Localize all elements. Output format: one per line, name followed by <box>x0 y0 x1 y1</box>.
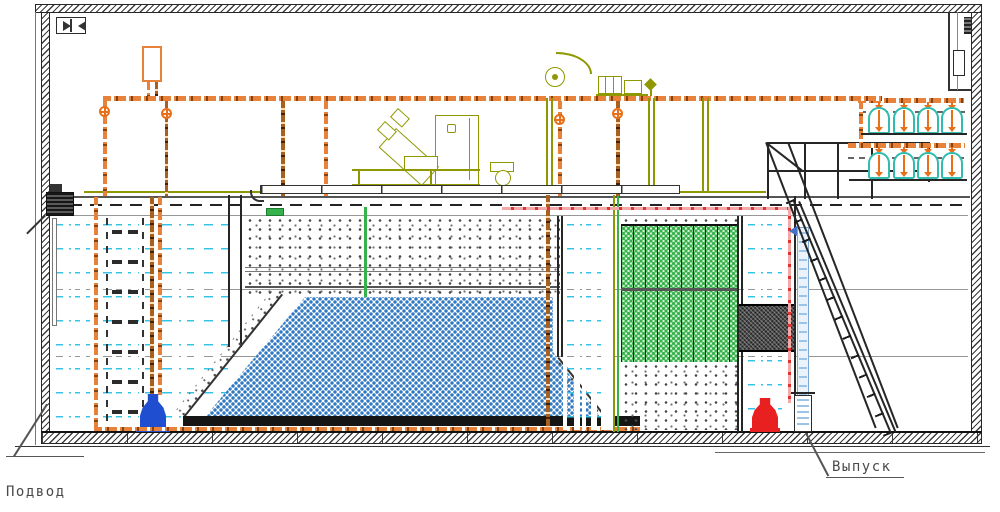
valve-icon-2 <box>161 108 172 119</box>
air-drop-pipe <box>546 195 550 427</box>
vessel-pipe-a <box>147 82 150 97</box>
blower-base <box>596 94 648 96</box>
ladder-rungs <box>112 230 122 422</box>
inlet-label-underline <box>6 456 84 457</box>
exhaust-duct-bottom <box>948 89 971 91</box>
blower-pump <box>624 80 642 94</box>
carbon-filter-media <box>739 304 795 352</box>
left-wall-outer-line <box>35 12 36 445</box>
settler-wall-a <box>557 216 559 357</box>
diffuser-bell-icon-r2b <box>893 152 915 179</box>
air-distribution-pipe <box>94 427 640 431</box>
inlet-label: Подвод сточных вод на очистку <box>6 459 76 512</box>
ground-line-2 <box>715 452 985 453</box>
rack-downpipe <box>859 101 863 145</box>
rack-manifold-row2 <box>848 143 965 148</box>
clarified-water-pipe-h <box>502 207 792 210</box>
exhaust-duct-line <box>948 12 950 90</box>
inlet-weir-green <box>266 208 284 216</box>
riser-4 <box>324 101 328 196</box>
outlet-label-underline <box>826 477 904 478</box>
feed-pump-volute <box>495 170 511 186</box>
wall-guide-rail <box>52 218 57 326</box>
olive-standpipe-2a <box>648 98 650 192</box>
froth-joint-line-b <box>245 271 560 272</box>
aeration-froth-zone <box>245 216 560 297</box>
outlet-box-dashes <box>797 399 809 429</box>
biofilter-media <box>621 224 737 362</box>
bioblock-top-stipple <box>621 216 737 224</box>
inlet-label-line-1: Подвод <box>6 486 76 500</box>
blower-duct-curve <box>556 52 592 74</box>
ladder-rungs-2 <box>128 230 138 422</box>
olive-standpipe-3a <box>702 98 704 192</box>
guide-rail-left <box>106 218 108 428</box>
ground-line <box>15 446 990 447</box>
blower-fan-hub <box>552 74 558 80</box>
olive-standpipe-1a <box>546 98 548 192</box>
olive-standpipe-3b <box>707 98 709 192</box>
screen-conveyor-box-a <box>390 108 410 128</box>
wall-fan-shaft <box>70 19 72 32</box>
rack-shelf-row2 <box>849 179 967 181</box>
expansion-vessel <box>142 46 162 82</box>
aeration-media-hopper <box>185 295 605 419</box>
check-valve-stem <box>650 88 652 96</box>
outlet-label: Выпуск <box>832 461 892 475</box>
riser-3 <box>281 101 285 196</box>
diffuser-bell-icon-r2d <box>941 152 963 179</box>
settler-channel-water <box>563 216 614 430</box>
stair-stringer-2 <box>799 201 897 432</box>
blower-motor <box>598 76 622 94</box>
outlet-box-cap <box>791 392 815 394</box>
cabinet-gauge <box>447 124 456 133</box>
deck-line <box>50 196 970 198</box>
grinder-motor <box>50 184 62 192</box>
treatment-plant-section-drawing: Подвод сточных вод на очистку Выпуск <box>0 0 1000 512</box>
top-wall <box>35 4 982 13</box>
deck-centerline-dashed <box>50 204 966 206</box>
diffuser-bell-icon-r2a <box>868 152 890 179</box>
guide-rail-right <box>142 218 144 428</box>
red-pump-base <box>750 428 780 432</box>
froth-joint-line-a <box>245 267 560 268</box>
olive-standpipe-2b <box>653 98 655 192</box>
screw-conveyor-pipe <box>260 185 680 194</box>
main-air-manifold <box>103 96 882 101</box>
bioblock-wall-olive <box>613 195 615 432</box>
froth-joint-line-c <box>245 286 560 288</box>
floor-slab <box>41 431 982 444</box>
conveyor-discharge-hook <box>250 190 264 202</box>
downcomer-wall-right <box>240 195 242 347</box>
left-wall <box>41 12 50 432</box>
zone-divider-green <box>364 207 367 299</box>
clarified-water-pipe-v <box>788 207 791 403</box>
pump-discharge-pipe <box>150 197 154 397</box>
filter-channel-water-upper <box>744 216 794 305</box>
diffuser-bell-icon-r1b <box>893 107 915 134</box>
downcomer-wall-left <box>228 195 230 347</box>
exhaust-duct-box <box>953 50 965 76</box>
cabinet-door-line <box>469 118 470 180</box>
screen-stand <box>404 156 438 170</box>
biofilter-joint-line <box>621 288 737 291</box>
wall-fan-icon-right <box>78 21 86 31</box>
rack-shelf-row1 <box>861 133 967 135</box>
diffuser-bell-icon-r1c <box>917 107 939 134</box>
pump-guide-pipe <box>158 197 162 395</box>
valve-icon-4 <box>612 108 623 119</box>
right-wall <box>971 12 982 444</box>
bioblock-wall-green <box>617 195 619 432</box>
platform-post-3 <box>837 142 839 199</box>
duct-grille-icon <box>964 17 971 34</box>
valve-icon-1 <box>99 106 110 117</box>
air-riser-pipe <box>94 197 98 430</box>
diffuser-bell-icon-r2c <box>917 152 939 179</box>
vessel-pipe-b <box>155 82 158 97</box>
bioblock-lower-stipple <box>621 362 737 430</box>
settler-wall-b <box>561 216 563 357</box>
valve-icon-3 <box>554 114 565 125</box>
inlet-grinder <box>46 192 74 216</box>
screen-cabinet <box>435 115 479 185</box>
olive-standpipe-1b <box>551 98 553 192</box>
diffuser-bell-icon-r1a <box>868 107 890 134</box>
diffuser-bell-icon-r1d <box>941 107 963 134</box>
